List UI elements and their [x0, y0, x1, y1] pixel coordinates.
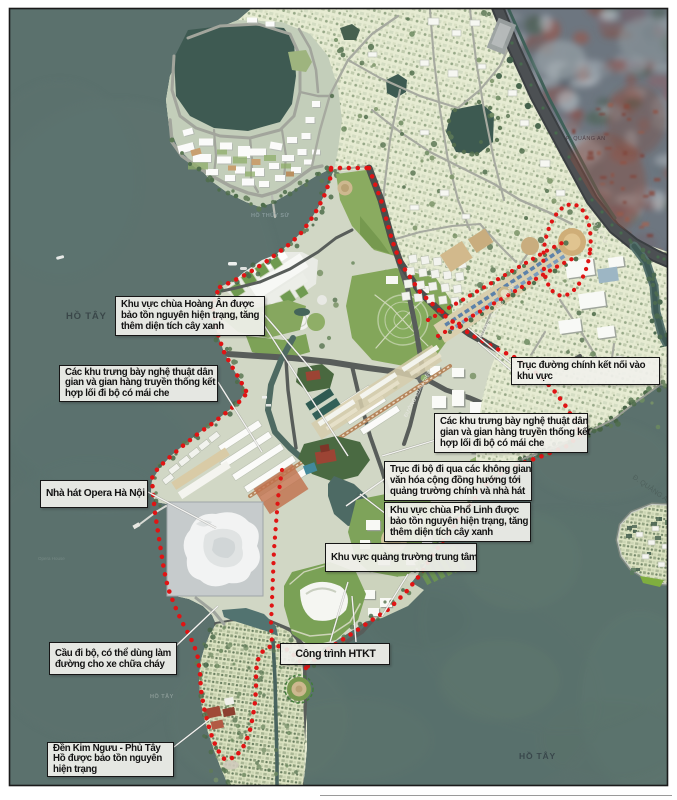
svg-text:Opera House: Opera House — [38, 556, 65, 561]
svg-text:HỒ THỦY SỨ: HỒ THỦY SỨ — [251, 212, 289, 219]
svg-text:P. QUẢNG AN: P. QUẢNG AN — [566, 135, 605, 142]
svg-text:HỒ TÂY: HỒ TÂY — [150, 693, 174, 700]
svg-text:HỒ TÂY: HỒ TÂY — [66, 310, 107, 322]
svg-text:HỒ TÂY: HỒ TÂY — [519, 750, 556, 761]
